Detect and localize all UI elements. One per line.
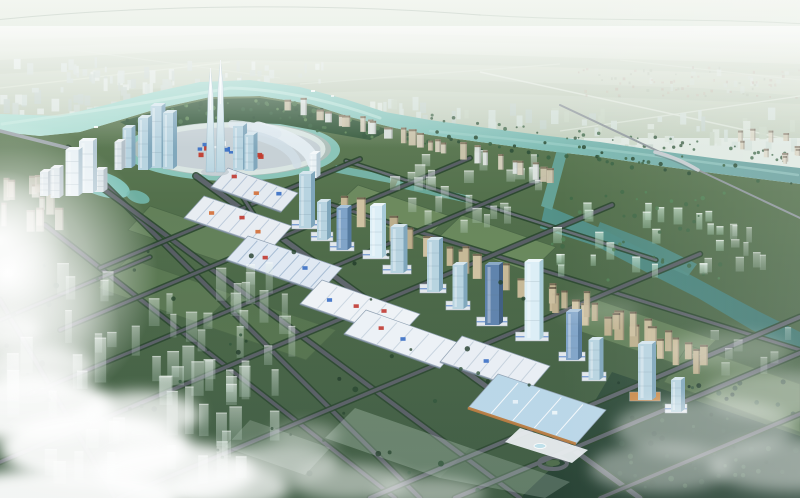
- scene-canvas: [0, 0, 800, 498]
- aerial-city-rendering: [0, 0, 800, 498]
- global-wash: [0, 0, 800, 498]
